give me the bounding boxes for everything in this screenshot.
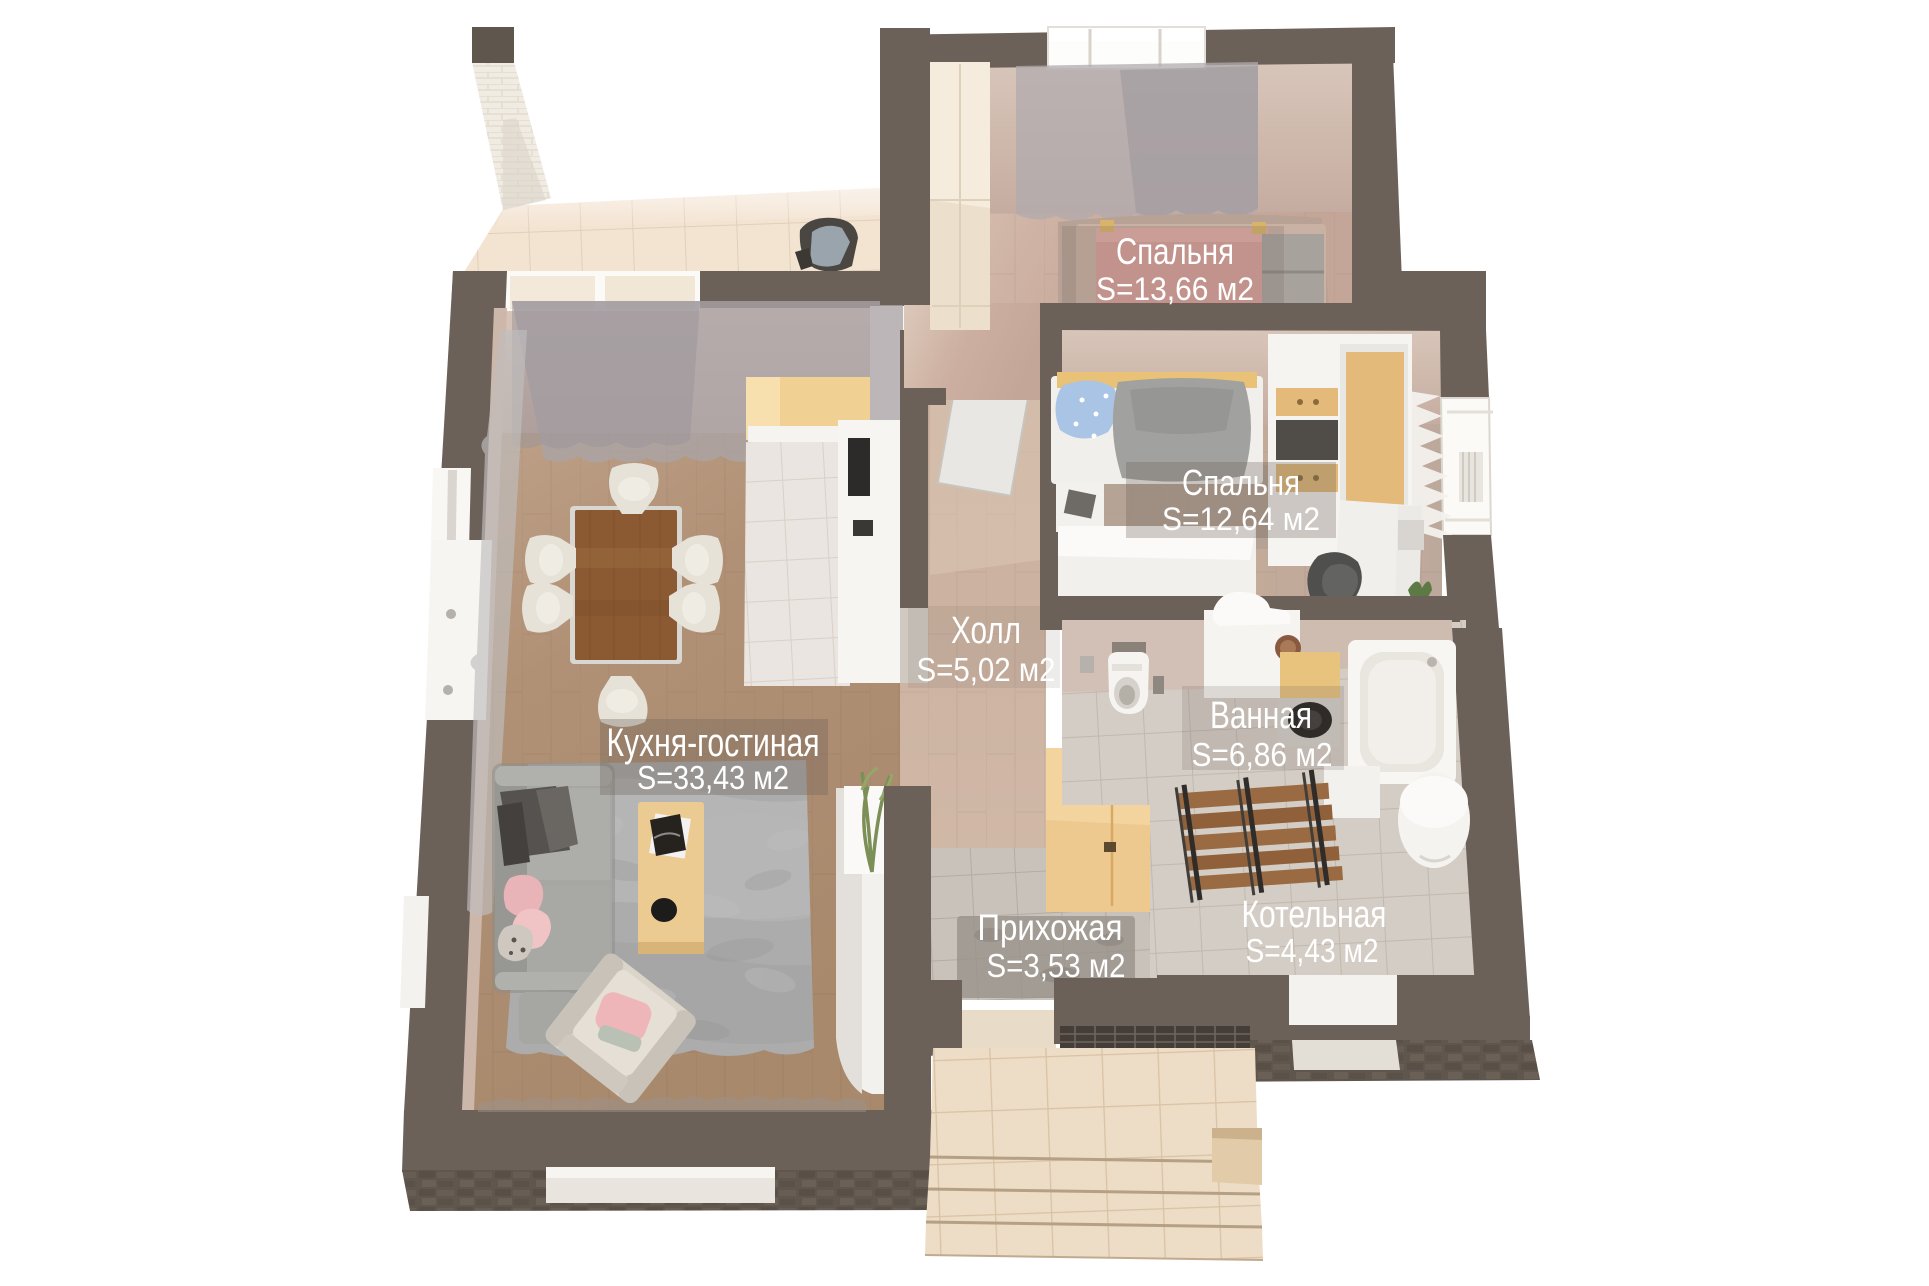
- svg-text:S=3,53 м2: S=3,53 м2: [987, 947, 1126, 984]
- svg-text:Спальня: Спальня: [1182, 462, 1300, 503]
- svg-text:Холл: Холл: [951, 610, 1021, 652]
- svg-text:S=33,43 м2: S=33,43 м2: [637, 759, 789, 796]
- svg-text:Спальня: Спальня: [1116, 231, 1234, 272]
- svg-text:Ванная: Ванная: [1210, 695, 1312, 737]
- svg-text:S=6,86 м2: S=6,86 м2: [1192, 736, 1333, 773]
- svg-text:S=13,66 м2: S=13,66 м2: [1096, 271, 1254, 307]
- svg-text:S=12,64 м2: S=12,64 м2: [1162, 501, 1320, 537]
- svg-text:Котельная: Котельная: [1242, 894, 1387, 936]
- svg-text:S=4,43 м2: S=4,43 м2: [1246, 932, 1379, 969]
- svg-text:S=5,02 м2: S=5,02 м2: [917, 651, 1056, 688]
- svg-text:Прихожая: Прихожая: [978, 907, 1123, 948]
